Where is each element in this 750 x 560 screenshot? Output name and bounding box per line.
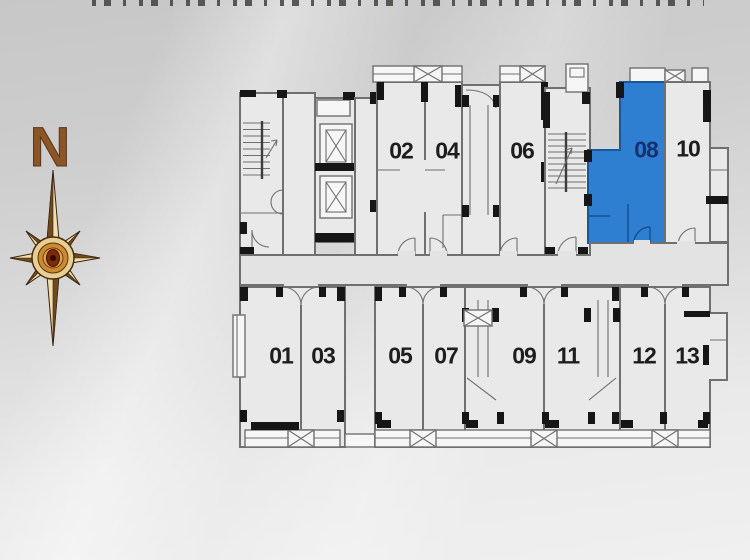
- elevator-icon: [320, 124, 352, 168]
- unit-label-09[interactable]: 09: [512, 343, 536, 370]
- ac-platform-icon: [288, 430, 314, 447]
- ac-platform-icon: [414, 66, 442, 82]
- ac-platform-icon: [410, 430, 436, 447]
- stairwell-left: [240, 90, 315, 255]
- elevator-core: [315, 92, 378, 255]
- stairwell-right: [543, 64, 590, 255]
- ac-platform-icon: [652, 430, 678, 447]
- unit-label-11[interactable]: 11: [557, 343, 579, 370]
- unit-05-13-area: [375, 287, 727, 447]
- floor-plan-page: N: [0, 0, 750, 560]
- ac-platform-icon: [531, 430, 557, 447]
- unit-label-01[interactable]: 01: [269, 343, 293, 370]
- ac-platform-icon: [665, 70, 685, 82]
- compass-north-label: N: [30, 115, 70, 178]
- ac-platform-icon: [464, 310, 492, 326]
- unit-label-04[interactable]: 04: [435, 138, 459, 165]
- unit-label-02[interactable]: 02: [389, 138, 413, 165]
- unit-label-13[interactable]: 13: [675, 343, 699, 370]
- elevator-icon: [320, 176, 352, 218]
- ac-platform-icon: [520, 66, 545, 82]
- unit-label-12[interactable]: 12: [632, 343, 656, 370]
- compass-rose-icon: N: [10, 115, 100, 346]
- unit-label-05[interactable]: 05: [388, 343, 412, 370]
- unit-label-06[interactable]: 06: [510, 138, 534, 165]
- unit-label-08[interactable]: 08: [634, 137, 658, 164]
- floor-plan-drawing: N: [0, 0, 750, 560]
- unit-label-10[interactable]: 10: [676, 136, 700, 163]
- balcony-connector: [345, 434, 375, 447]
- unit-label-03[interactable]: 03: [311, 343, 335, 370]
- shaft-04-06: [462, 85, 500, 255]
- unit-label-07[interactable]: 07: [434, 343, 458, 370]
